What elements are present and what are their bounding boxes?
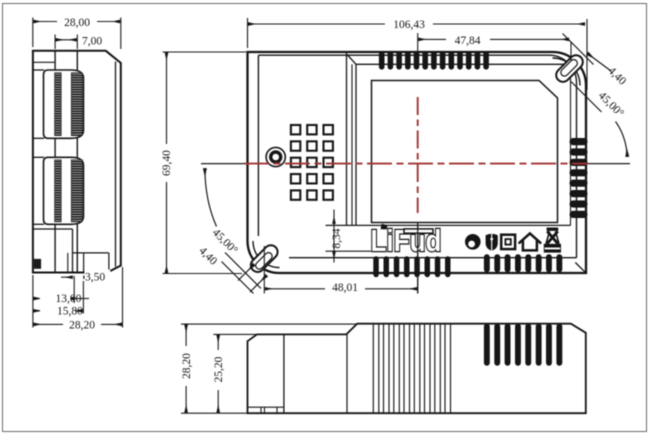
svg-text:48,01: 48,01 [332,282,358,294]
svg-text:69,40: 69,40 [161,150,173,176]
svg-text:106,43: 106,43 [393,19,425,31]
svg-text:15,80: 15,80 [57,306,83,318]
svg-text:8,34: 8,34 [331,228,343,248]
svg-text:28,20: 28,20 [181,353,193,379]
svg-text:28,20: 28,20 [69,319,95,331]
svg-text:25,20: 25,20 [213,356,225,382]
svg-text:28,00: 28,00 [64,17,90,29]
svg-text:47,84: 47,84 [455,35,481,47]
svg-text:13,00: 13,00 [56,293,82,305]
svg-text:3,50: 3,50 [85,272,105,284]
svg-text:7,00: 7,00 [82,35,102,47]
